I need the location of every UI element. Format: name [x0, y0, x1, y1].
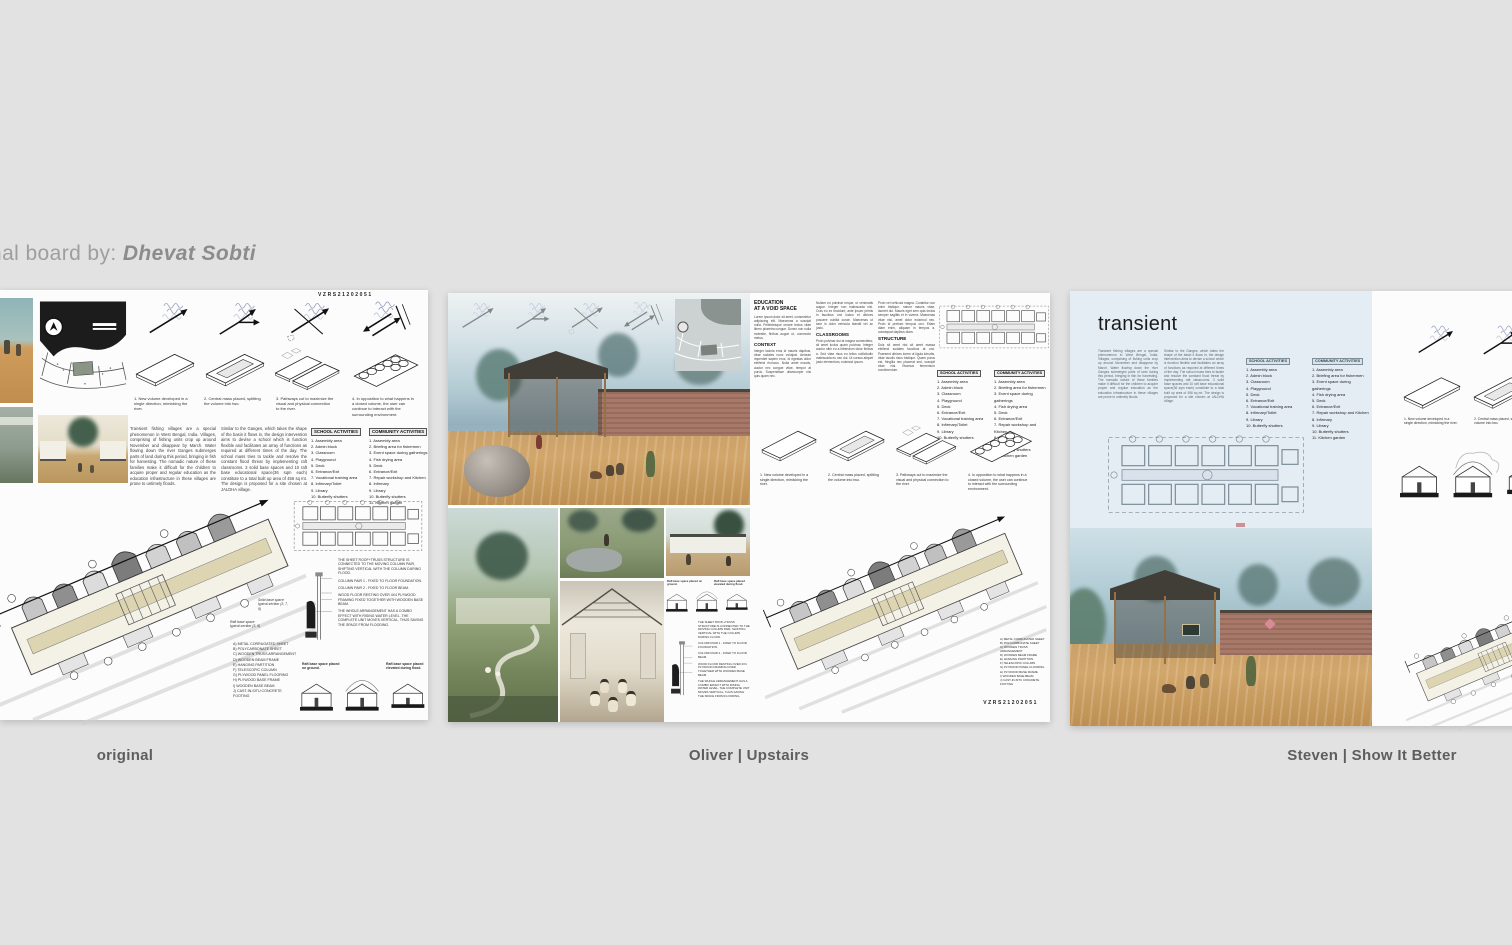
- design-paragraph: Similar to the Ganges, which takes the s…: [221, 426, 307, 493]
- floor-plan-drawing: [938, 300, 1050, 354]
- construction-legend: A) METAL CORRUGATED SHEETB) POLYCARBONAT…: [1000, 637, 1048, 686]
- render-post: [1114, 592, 1116, 664]
- massing-caption-3: 3. Pathways cut to maximize the visual a…: [276, 396, 334, 412]
- massing-caption-2: 2. Central mass placed, splitting the vo…: [204, 396, 262, 406]
- massing-caption-3: 3. Pathways cut to maximize the visual a…: [896, 473, 952, 487]
- massing-diagram-1: [758, 423, 820, 467]
- list-items: 1. Assembly area2. Briefing area for fis…: [369, 438, 428, 506]
- render-longhouse: [1220, 610, 1372, 655]
- note-roof: THE SHEET ROOF+TRUSS STRUCTURE IS CONNEC…: [698, 621, 750, 639]
- list-title: COMMUNITY ACTIVITIES: [369, 428, 427, 436]
- concept-sketch-2: [1475, 321, 1512, 361]
- note-combo: THE WHOLE ARRANGEMENT HAS A COMBO EFFECT…: [338, 609, 426, 627]
- massing-caption-1: 1. New volume developed in a single dire…: [760, 473, 816, 487]
- raft-flood-caption: Raft base space placed elevated during f…: [386, 662, 428, 671]
- community-activities-list: COMMUNITY ACTIVITIES 1. Assembly area2. …: [1312, 349, 1370, 441]
- note-combo: THE WHOLE ARRANGEMENT HAS A COMBO EFFECT…: [698, 680, 750, 698]
- list-item: J) CAST-IN-SITU CONCRETE FOOTING: [1000, 678, 1048, 686]
- massing-caption-2: 2. Central mass placed, splitting the vo…: [1474, 417, 1512, 426]
- render-child: [616, 463, 624, 475]
- list-title: SCHOOL ACTIVITIES: [311, 428, 361, 436]
- concept-sketch-1: [456, 299, 504, 335]
- note-roof: THE SHEET ROOF+TRUSS STRUCTURE IS CONNEC…: [338, 558, 426, 576]
- render-child: [606, 465, 614, 476]
- legend-items: A) METAL CORRUGATED SHEETB) POLYCARBONAT…: [233, 642, 299, 699]
- attribution-prefix: nal board by:: [0, 242, 123, 265]
- massing-diagram-1: [1400, 369, 1464, 415]
- concept-sketch-4: [350, 298, 420, 342]
- construction-legend: A) METAL CORRUGATED SHEETB) POLYCARBONAT…: [233, 642, 299, 699]
- plan-marker: [1236, 523, 1245, 527]
- concept-sketch-1: [1410, 321, 1466, 361]
- massing-caption-2: 2. Central mass placed, splitting the vo…: [828, 473, 884, 482]
- render-dog: [590, 471, 602, 479]
- render-post: [1214, 592, 1216, 664]
- list-item: 3. Event space during gatherings: [1312, 379, 1370, 391]
- solid-base-label: Solid base space typical section (3, 7, …: [258, 598, 290, 611]
- massing-diagram-2: [1470, 369, 1512, 415]
- section-notes: THE SHEET ROOF+TRUSS STRUCTURE IS CONNEC…: [338, 558, 426, 630]
- project-title: transient: [1098, 313, 1177, 336]
- section-notes: THE SHEET ROOF+TRUSS STRUCTURE IS CONNEC…: [698, 621, 750, 701]
- render-longhouse: [598, 389, 750, 436]
- floor-plan-drawing: [1106, 431, 1306, 519]
- massing-caption-1: 1. New volume developed in a single dire…: [134, 396, 192, 412]
- list-items: 1. Assembly area2. Briefing area for fis…: [1312, 367, 1370, 441]
- site-plan-inset: [675, 299, 741, 371]
- hero-render: [448, 293, 750, 505]
- context-header: CONTEXT: [754, 342, 811, 348]
- note-pair2: COLUMN PAIR 2 - FIXED TO FLOOR BEAM.: [698, 652, 750, 659]
- school-activities-list: SCHOOL ACTIVITIES 1. Assembly area2. Adm…: [1246, 349, 1308, 429]
- render-post: [1164, 596, 1166, 664]
- lorem-paragraph: Nullam eu pulvinar neque, ut venenatis a…: [816, 301, 873, 330]
- list-title: COMMUNITY ACTIVITIES: [1312, 358, 1363, 365]
- board-show-it-better: transient Transient fishing villages are…: [1070, 291, 1512, 726]
- raft-ground-caption: Raft base space placed on ground.: [302, 662, 342, 671]
- lorem-paragraph: Lorem ipsum dolor sit amet, consectetur …: [754, 315, 811, 340]
- structure-header: STRUCTURE: [878, 336, 935, 342]
- community-activities-list: COMMUNITY ACTIVITIES 1. Assembly area2. …: [369, 420, 428, 506]
- flood-sections-diagram: [1400, 449, 1512, 507]
- massing-diagram-4: [966, 423, 1036, 467]
- note-floor: WOOD FLOOR RESTING OVER 4X4 PLYWOOD FRAM…: [338, 593, 426, 606]
- board-original: VZRS21202051 1. New volume develop: [0, 290, 428, 720]
- column-section-detail: [670, 619, 694, 719]
- board-upstairs: EDUCATION AT A VOID SPACE Lorem ipsum do…: [448, 293, 1050, 722]
- list-item: C) WOODEN TRUSS ARRANGEMENT: [1000, 645, 1048, 653]
- render-post: [604, 373, 606, 437]
- note-pair1: COLUMN PAIR 1 - FIXED TO FLOOR FOUNDATIO…: [338, 579, 426, 583]
- raft-base-label: Raft base space typical section (3, 9): [230, 620, 264, 629]
- render-interior: [560, 581, 664, 722]
- render-photo-village: [0, 298, 33, 403]
- column-section-detail: [304, 558, 334, 656]
- intro-paragraph: Transient fishing villages are a special…: [130, 426, 216, 487]
- massing-diagram-4: [348, 346, 424, 392]
- render-courtyard: [38, 415, 128, 483]
- title-line-2: AT A VOID SPACE: [754, 306, 797, 312]
- video-frame-canvas: nal board by: Dhevat Sobti VZRS21202051: [0, 0, 1512, 945]
- concept-sketch-4: [618, 299, 666, 335]
- render-garden: [448, 508, 558, 722]
- list-items: 1. Assembly area2. Admin block3. Classro…: [1246, 367, 1308, 429]
- massing-caption-4: 4. In opposition to what happens in a cl…: [968, 473, 1030, 492]
- lorem-paragraph: Duis sit amet nisi sit amet massa eleife…: [878, 343, 935, 372]
- board-code: VZRS21202051: [983, 700, 1038, 706]
- concept-sketch-2: [510, 299, 558, 335]
- render-boy: [1246, 656, 1256, 686]
- render-boy: [646, 451, 655, 477]
- render-dog: [1162, 684, 1176, 693]
- hero-render: [1070, 528, 1372, 726]
- list-item: C) WOODEN TRUSS ARRANGEMENT: [233, 652, 299, 657]
- massing-caption-1: 1. New volume developed in a single dire…: [1404, 417, 1458, 426]
- massing-diagram-3: [894, 423, 960, 467]
- massing-diagram-2: [202, 346, 268, 392]
- flood-sections-diagram: [300, 676, 428, 716]
- attribution-author: Dhevat Sobti: [123, 242, 256, 265]
- list-item: 3. Event space during gatherings: [994, 391, 1050, 403]
- board-label-show-it-better: Steven | Show It Better: [1070, 747, 1512, 764]
- list-item: 10. Butterfly shutters: [1246, 423, 1308, 429]
- list-title: SCHOOL ACTIVITIES: [937, 370, 981, 377]
- massing-diagram-1: [132, 346, 198, 392]
- raft-ground-caption: Raft base space placed on ground.: [667, 580, 703, 587]
- note-pair1: COLUMN PAIR 1 - FIXED TO FLOOR FOUNDATIO…: [698, 642, 750, 649]
- massing-diagram-2: [826, 423, 888, 467]
- text-column-3: Proin vel vehicula magna. Curabitur non …: [878, 301, 935, 372]
- school-activities-list: SCHOOL ACTIVITIES 1. Assembly area2. Adm…: [311, 420, 366, 500]
- list-item: 7. Repair workshop and Kitchen: [1312, 410, 1370, 416]
- render-blackboard: [1182, 624, 1200, 636]
- list-title: COMMUNITY ACTIVITIES: [994, 370, 1045, 377]
- text-column-1: Lorem ipsum dolor sit amet, consectetur …: [754, 315, 811, 378]
- project-title: EDUCATION AT A VOID SPACE: [754, 300, 797, 313]
- list-item: G) PLYWOOD PANEL FLOORING: [1000, 665, 1048, 669]
- axonometric-drawing: [1398, 591, 1512, 723]
- classrooms-header: CLASSROOMS: [816, 332, 873, 338]
- render-child: [1200, 674, 1209, 688]
- render-rock: [464, 445, 530, 497]
- concept-sketch-3: [564, 299, 612, 335]
- render-tree: [1308, 558, 1360, 606]
- massing-diagram-3: [272, 346, 344, 392]
- render-photo-deck: [0, 407, 33, 483]
- render-pond: [560, 508, 664, 578]
- render-child: [1186, 676, 1195, 689]
- floor-plan-drawing: [288, 498, 428, 554]
- legend-items: A) METAL CORRUGATED SHEETB) POLYCARBONAT…: [1000, 637, 1048, 686]
- concept-sketch-1: [140, 298, 202, 342]
- lorem-paragraph: Proin vel vehicula magna. Curabitur non …: [878, 301, 935, 334]
- render-figure: [536, 435, 542, 449]
- flood-sections-diagram: [666, 589, 750, 615]
- render-post: [508, 373, 510, 437]
- list-items: 1. Assembly area2. Admin block3. Classro…: [311, 438, 366, 500]
- list-item: 3. Event space during gatherings: [369, 450, 428, 456]
- attribution: nal board by: Dhevat Sobti: [0, 242, 256, 266]
- concept-sketch-3: [280, 298, 342, 342]
- board-label-original: original: [20, 747, 230, 764]
- concept-sketch-2: [210, 298, 272, 342]
- board-label-upstairs: Oliver | Upstairs: [448, 747, 1050, 764]
- note-pair2: COLUMN PAIR 2 - FIXED TO FLOOR BEAM.: [338, 586, 426, 590]
- list-title: SCHOOL ACTIVITIES: [1246, 358, 1290, 365]
- list-item: 11. Kitchen garden: [1312, 435, 1370, 441]
- list-item: J) CAST-IN-SITU CONCRETE FOOTING: [233, 689, 299, 699]
- text-column-2: Similar to the Ganges, which takes the s…: [1164, 349, 1224, 403]
- raft-flood-caption: Raft base space placed elevated during f…: [714, 580, 750, 587]
- site-plan-drawing: [38, 292, 128, 405]
- lorem-paragraph: Integer lacinia eros id mauris dapibus, …: [754, 349, 811, 378]
- massing-caption-4: 4. In opposition to what happens in a cl…: [352, 396, 416, 417]
- lorem-paragraph: Proin pulvinar dui at magna consectetur,…: [816, 339, 873, 364]
- render-post: [556, 377, 558, 437]
- render-tree: [1238, 564, 1278, 606]
- text-column-2: Nullam eu pulvinar neque, ut venenatis a…: [816, 301, 873, 364]
- text-column-1: Transient fishing villages are a special…: [1098, 349, 1158, 399]
- note-floor: WOOD FLOOR RESTING OVER 4X4 PLYWOOD FRAM…: [698, 663, 750, 678]
- render-building-tree: [666, 508, 750, 576]
